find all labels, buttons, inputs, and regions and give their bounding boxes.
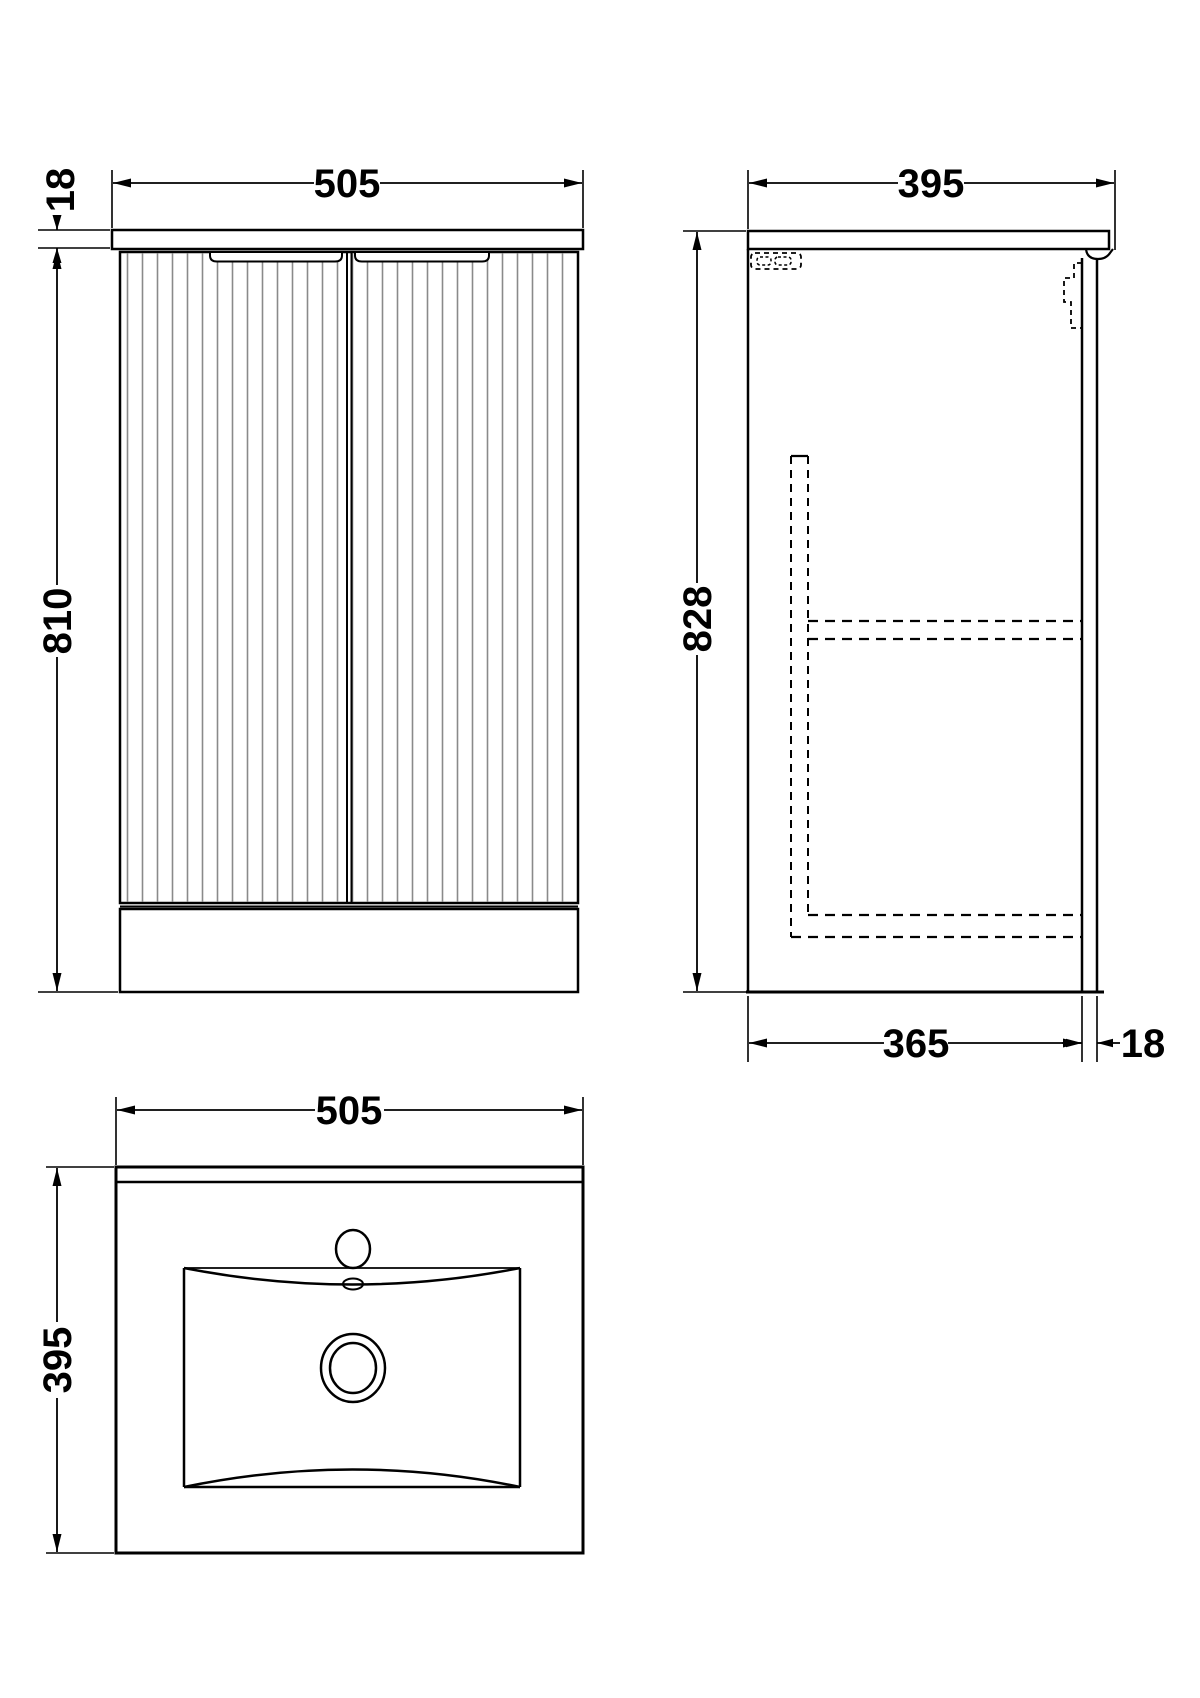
plan-dim-depth: 395	[36, 1167, 114, 1553]
side-dim-depth-label: 395	[898, 162, 965, 206]
side-dim-height-label: 828	[676, 586, 720, 653]
side-dim-depth: 395	[748, 162, 1115, 250]
front-handle-recess-left	[210, 252, 342, 262]
front-dim-height: 810	[36, 251, 118, 992]
plan-dim-depth-label: 395	[36, 1327, 80, 1394]
front-dim-width: 505	[112, 162, 583, 228]
plan-basin-outline	[116, 1167, 583, 1553]
front-dim-width-label: 505	[314, 162, 381, 206]
front-door-right-fluting	[353, 254, 577, 902]
front-handle-recess-right	[355, 252, 489, 262]
side-dim-carcass-label: 365	[883, 1022, 950, 1066]
technical-drawing-sheet: 505 18 810	[0, 0, 1200, 1698]
vanity-unit-drawing: 505 18 810	[0, 0, 1200, 1698]
plan-bowl-back-curve	[184, 1268, 520, 1285]
front-dim-height-label: 810	[36, 588, 80, 655]
front-door-left-fluting	[122, 254, 346, 902]
side-dim-door-arrows	[1066, 1039, 1113, 1047]
side-hinge-slot-left	[757, 257, 771, 265]
side-dim-door-label: 18	[1121, 1022, 1166, 1066]
front-dim-worktop: 18	[38, 168, 110, 264]
side-worktop-nose-profile	[1086, 249, 1113, 259]
front-dim-worktop-label: 18	[39, 168, 83, 213]
side-handle-recess-hidden	[1064, 263, 1082, 328]
front-worktop	[112, 230, 583, 249]
side-waste-pipe-hidden	[791, 456, 808, 937]
plan-dim-width-label: 505	[316, 1089, 383, 1133]
side-worktop	[748, 231, 1109, 249]
plan-tap-hole	[336, 1230, 370, 1268]
front-dim-worktop-extension-lines	[38, 230, 110, 248]
plan-view: 505 395	[36, 1089, 583, 1553]
side-dim-bottom: 365 18	[748, 996, 1165, 1066]
plan-bowl	[184, 1268, 520, 1487]
side-hinge-slot-right	[775, 257, 791, 265]
side-bottom-panel-hidden	[791, 915, 1082, 937]
plan-bowl-front-curve	[184, 1470, 520, 1488]
side-view: 395 828 365 18	[676, 162, 1165, 1066]
plan-dim-width: 505	[116, 1089, 583, 1165]
side-hinge-plate-hidden	[751, 253, 801, 269]
front-plinth	[120, 909, 578, 992]
side-dim-height: 828	[676, 231, 750, 992]
plan-drain-inner	[330, 1343, 376, 1393]
side-shelf-hidden	[808, 621, 1082, 639]
front-view: 505 18 810	[36, 162, 583, 992]
